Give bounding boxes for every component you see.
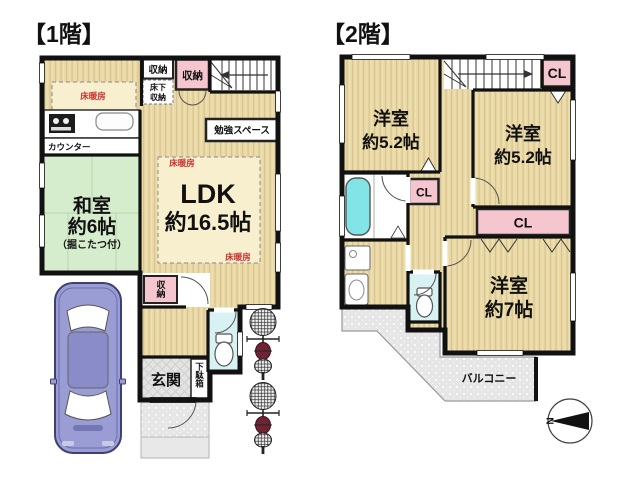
washbasin-bowl: [350, 251, 357, 258]
floorplan-canvas: 【1階】 床暖房 カウンター 和室 約6帖 （掘こたつ付） 収納 床下 収納 収…: [0, 0, 619, 480]
getabako-label: 下駄箱: [195, 362, 205, 388]
counter-label: カウンター: [48, 142, 91, 152]
ldk-size: 約16.5帖: [165, 210, 252, 235]
washitsu-size: 約6帖: [68, 215, 117, 238]
compass: N: [543, 399, 592, 443]
washitsu-name: 和室: [73, 194, 111, 217]
room-c-size: 約7帖: [485, 298, 534, 321]
bathtub-icon: [346, 178, 370, 235]
floor-heating-label-dining: 床暖房: [80, 91, 106, 101]
stove-burner: [63, 118, 69, 124]
stove-panel: [51, 127, 71, 131]
floor2-plan: 【2階】 バルコニー 洋室 約5.2帖 CL 洋室 約5.2帖 CL: [322, 21, 576, 401]
room-b-name: 洋室: [505, 123, 541, 144]
porch: [141, 400, 209, 437]
washitsu-note: （掘こたつ付）: [57, 238, 127, 251]
underfloor-label2: 収納: [150, 92, 166, 102]
closet-mid-label: CL: [416, 186, 432, 200]
ldk-name: LDK: [180, 179, 236, 209]
room-a-size: 約5.2帖: [362, 132, 420, 152]
toilet-bowl-2f: [417, 295, 433, 317]
floorplan-svg: 【1階】 床暖房 カウンター 和室 約6帖 （掘こたつ付） 収納 床下 収納 収…: [0, 0, 619, 480]
room-a-name: 洋室: [373, 108, 409, 129]
floor-heating-label-ldk-bottom: 床暖房: [225, 252, 251, 262]
floor1-title: 【1階】: [23, 21, 105, 47]
porch-step: [141, 437, 209, 458]
washbasin-icon: [345, 246, 370, 270]
floor-heating-label-ldk-top: 床暖房: [169, 158, 195, 168]
room-c-name: 洋室: [490, 274, 528, 297]
car-icon: [51, 283, 126, 453]
storage-top-label: 収納: [148, 64, 167, 76]
closet-top-right-label: CL: [548, 65, 567, 81]
toilet-bowl-1f: [215, 342, 233, 366]
study-label: 勉強スペース: [213, 125, 270, 137]
storage-pink-label: 収納: [182, 69, 203, 82]
sink-icon: [96, 113, 133, 130]
floor1-plan: 【1階】 床暖房 カウンター 和室 約6帖 （掘こたつ付） 収納 床下 収納 収…: [23, 21, 281, 458]
closet-wide-label: CL: [514, 215, 533, 231]
underfloor-label1: 床下: [150, 82, 166, 92]
storage-hall-label: 収納: [155, 279, 166, 299]
room-b-size: 約5.2帖: [494, 147, 552, 167]
genkan-label: 玄関: [151, 371, 181, 389]
floor2-title: 【2階】: [322, 21, 404, 47]
compass-north-label: N: [543, 417, 554, 424]
balcony-label: バルコニー: [462, 372, 517, 385]
toilet-door-gap-1f: [214, 308, 234, 313]
stove-burner: [53, 118, 59, 124]
